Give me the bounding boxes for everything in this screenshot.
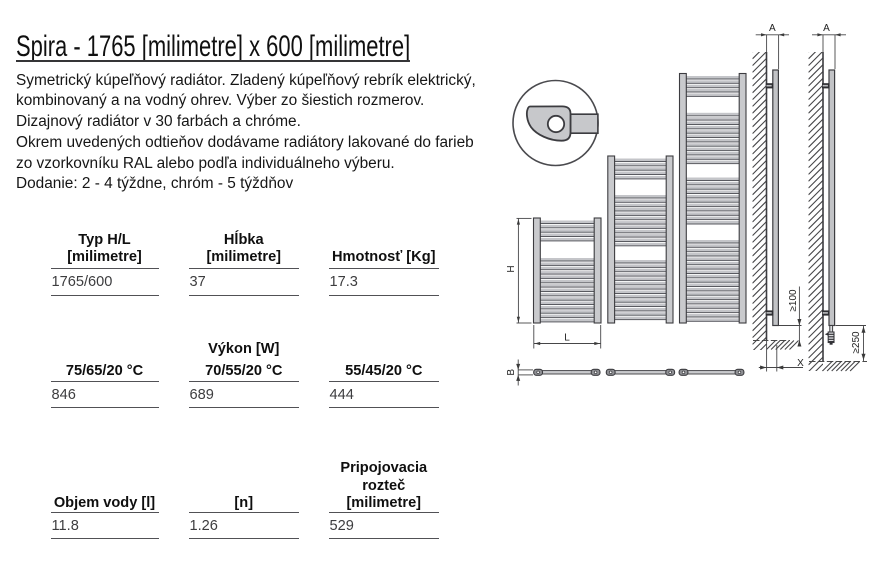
svg-text:B: B — [506, 369, 517, 376]
svg-text:X: X — [797, 358, 804, 369]
svg-text:H: H — [506, 265, 517, 272]
svg-text:≥250: ≥250 — [851, 331, 862, 354]
svg-text:≥100: ≥100 — [788, 289, 799, 312]
svg-text:A: A — [823, 23, 830, 34]
svg-text:L: L — [564, 333, 570, 344]
svg-text:A: A — [769, 23, 776, 34]
